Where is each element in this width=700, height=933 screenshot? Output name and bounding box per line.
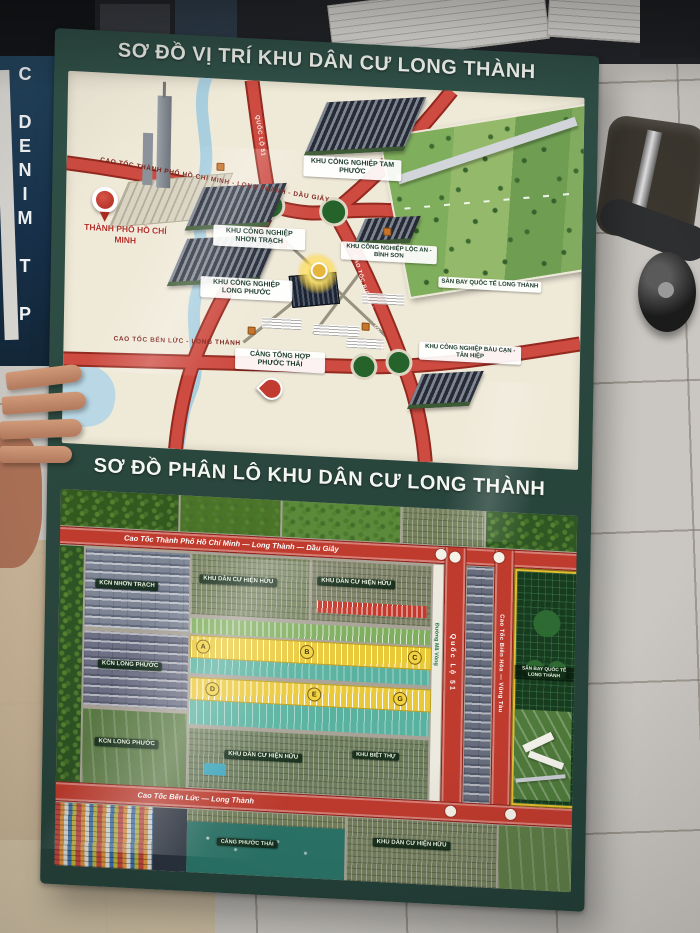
- chair-wheel-hub: [658, 282, 674, 298]
- dark-corner: [640, 0, 700, 58]
- block-badge: A: [196, 639, 210, 654]
- aerial-urban-d: [346, 817, 497, 888]
- forest-strip-left: [56, 545, 84, 783]
- roundabout-dot: [505, 809, 516, 821]
- road-bottom-text: Cao Tốc Bến Lức — Long Thành: [137, 790, 254, 805]
- aerial-fields-left: [82, 708, 187, 788]
- finger: [0, 446, 72, 463]
- river-water: [186, 821, 345, 880]
- poi-icon: [248, 326, 256, 334]
- finger: [5, 363, 83, 390]
- tower-spire: [163, 82, 166, 98]
- roundabout-dot: [449, 551, 460, 563]
- poi-icon: [383, 227, 391, 235]
- road-ql51: Quốc Lộ 51: [441, 547, 466, 821]
- block-badge: B: [300, 645, 314, 660]
- city-tower: [142, 133, 153, 186]
- small-poi-label: [314, 324, 360, 337]
- interchange-icon: [387, 350, 411, 375]
- finger: [1, 391, 86, 415]
- map1-panel: THÀNH PHỐ HỒ CHÍ MINH KHU CÔNG NGHIỆP TA…: [62, 71, 585, 470]
- aerial-fields-right: [498, 825, 572, 892]
- interchange-icon: [352, 354, 376, 379]
- city-marker-tail: [100, 212, 110, 223]
- terminal-building: [528, 750, 564, 769]
- finger: [0, 419, 82, 440]
- road-ql51-text: Quốc Lộ 51: [448, 633, 456, 692]
- pool: [204, 763, 226, 776]
- map-poster: SƠ ĐỒ VỊ TRÍ KHU DÂN CƯ LONG THÀNH: [40, 28, 599, 912]
- urban-block: [402, 507, 485, 547]
- runway: [516, 774, 566, 782]
- paper-sheet: [547, 0, 648, 43]
- aerial-sliver: [463, 566, 493, 804]
- small-poi-label: [262, 317, 302, 330]
- airport-render: [513, 709, 571, 802]
- port-pier: [152, 807, 187, 872]
- block-badge: D: [205, 682, 219, 697]
- roundabout-dot: [493, 552, 504, 564]
- block-badge: E: [307, 687, 321, 702]
- terminal-building: [522, 732, 554, 753]
- poi-icon: [362, 322, 370, 330]
- block-badge: C: [408, 650, 422, 665]
- map2-panel: Cao Tốc Thành Phố Hồ Chí Minh — Long Thà…: [54, 489, 577, 892]
- aerial-kcn-nhon-trach: [85, 548, 190, 631]
- port-containers: [54, 802, 153, 870]
- golf-course-block: [282, 501, 400, 543]
- photo-scene: C DENIM T P SƠ ĐỒ VỊ TRÍ KHU DÂN CƯ LONG…: [0, 0, 700, 933]
- forest-block: [180, 495, 280, 536]
- poi-icon: [216, 163, 224, 171]
- road-bh-vt-text: Cao Tốc Biên Hòa — Vũng Tàu: [497, 614, 505, 713]
- road-bien-hoa-vung-tau: Cao Tốc Biên Hòa — Vũng Tàu: [491, 550, 514, 824]
- street-name-text: Đường Mã Vòng: [433, 623, 440, 666]
- aerial-urban-a: [191, 554, 310, 620]
- roundabout-dot: [445, 805, 456, 817]
- hand: [0, 350, 100, 580]
- project-pin-icon: [311, 262, 328, 280]
- banner-text: C DENIM T P: [14, 64, 35, 328]
- aerial-kcn-long-phuoc: [83, 630, 188, 709]
- label-san-bay: SÂN BAY QUỐC TẾ LONG THÀNH: [514, 665, 573, 682]
- forest-block: [486, 511, 578, 552]
- block-badge: G: [393, 692, 407, 707]
- roundabout-dot: [436, 549, 447, 561]
